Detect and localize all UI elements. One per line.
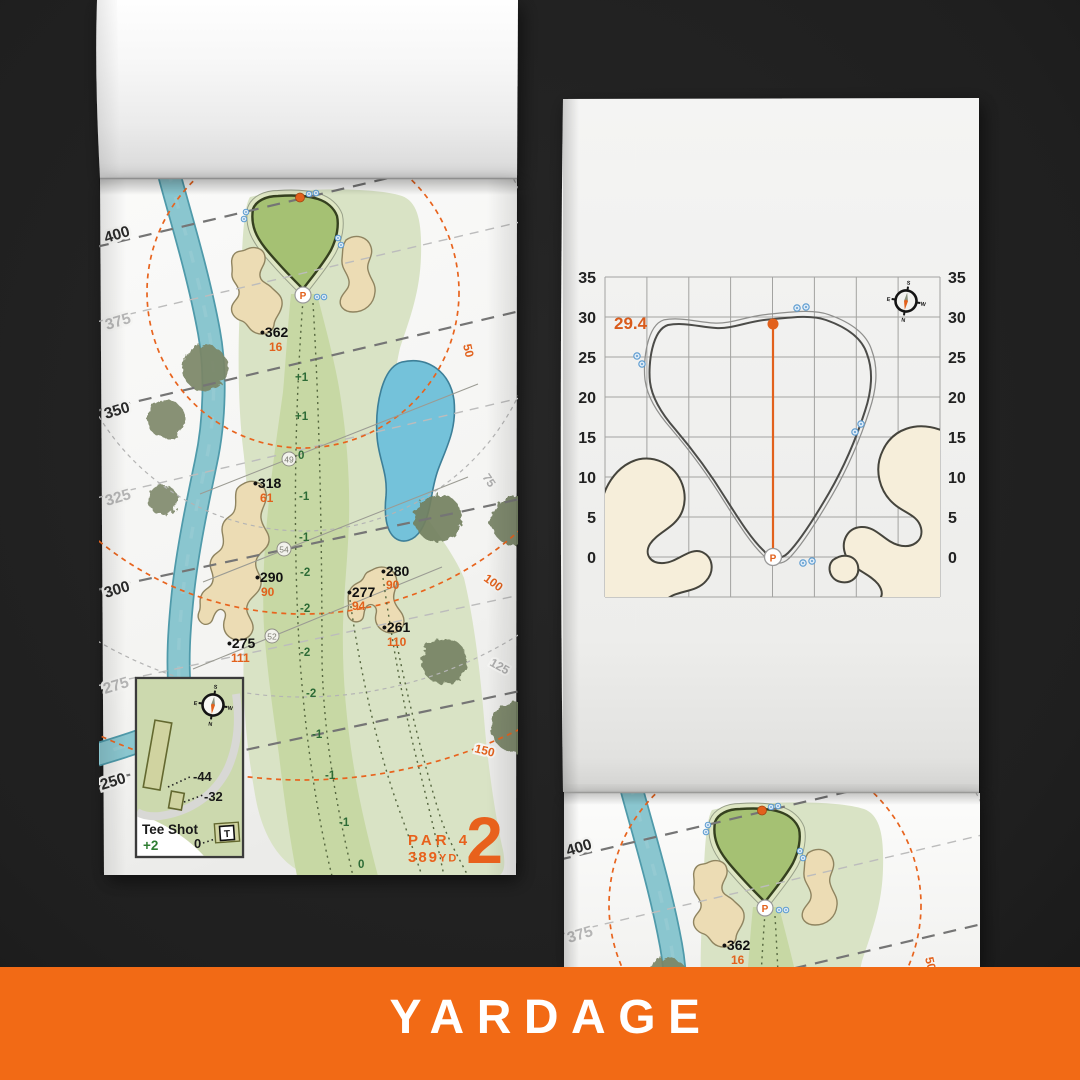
svg-text:15: 15 <box>948 430 966 447</box>
svg-text:P: P <box>770 554 777 565</box>
svg-text:0: 0 <box>948 550 957 567</box>
svg-text:35: 35 <box>578 270 596 287</box>
svg-text:29.4: 29.4 <box>614 314 648 333</box>
svg-text:25: 25 <box>948 350 966 367</box>
svg-text:YARDAGE: YARDAGE <box>389 991 712 1044</box>
svg-text:+2: +2 <box>143 838 158 853</box>
svg-text:-44: -44 <box>193 769 213 784</box>
svg-text:35: 35 <box>948 270 966 287</box>
svg-text:10: 10 <box>578 470 596 487</box>
svg-text:Tee Shot: Tee Shot <box>142 822 199 837</box>
svg-text:30: 30 <box>948 310 966 327</box>
svg-text:15: 15 <box>578 430 596 447</box>
svg-text:389YD: 389YD <box>408 849 458 866</box>
svg-text:5: 5 <box>587 510 596 527</box>
svg-text:2: 2 <box>466 803 503 877</box>
svg-text:25: 25 <box>578 350 596 367</box>
svg-text:20: 20 <box>578 390 596 407</box>
svg-text:5: 5 <box>948 510 957 527</box>
svg-text:20: 20 <box>948 390 966 407</box>
svg-text:10: 10 <box>948 470 966 487</box>
svg-text:0: 0 <box>194 836 201 851</box>
svg-text:30: 30 <box>578 310 596 327</box>
svg-text:N: N <box>901 318 906 324</box>
svg-text:-32: -32 <box>204 789 223 804</box>
svg-text:0: 0 <box>587 550 596 567</box>
svg-text:PAR 4: PAR 4 <box>408 832 471 849</box>
svg-text:T: T <box>224 829 231 840</box>
svg-text:N: N <box>208 722 213 728</box>
